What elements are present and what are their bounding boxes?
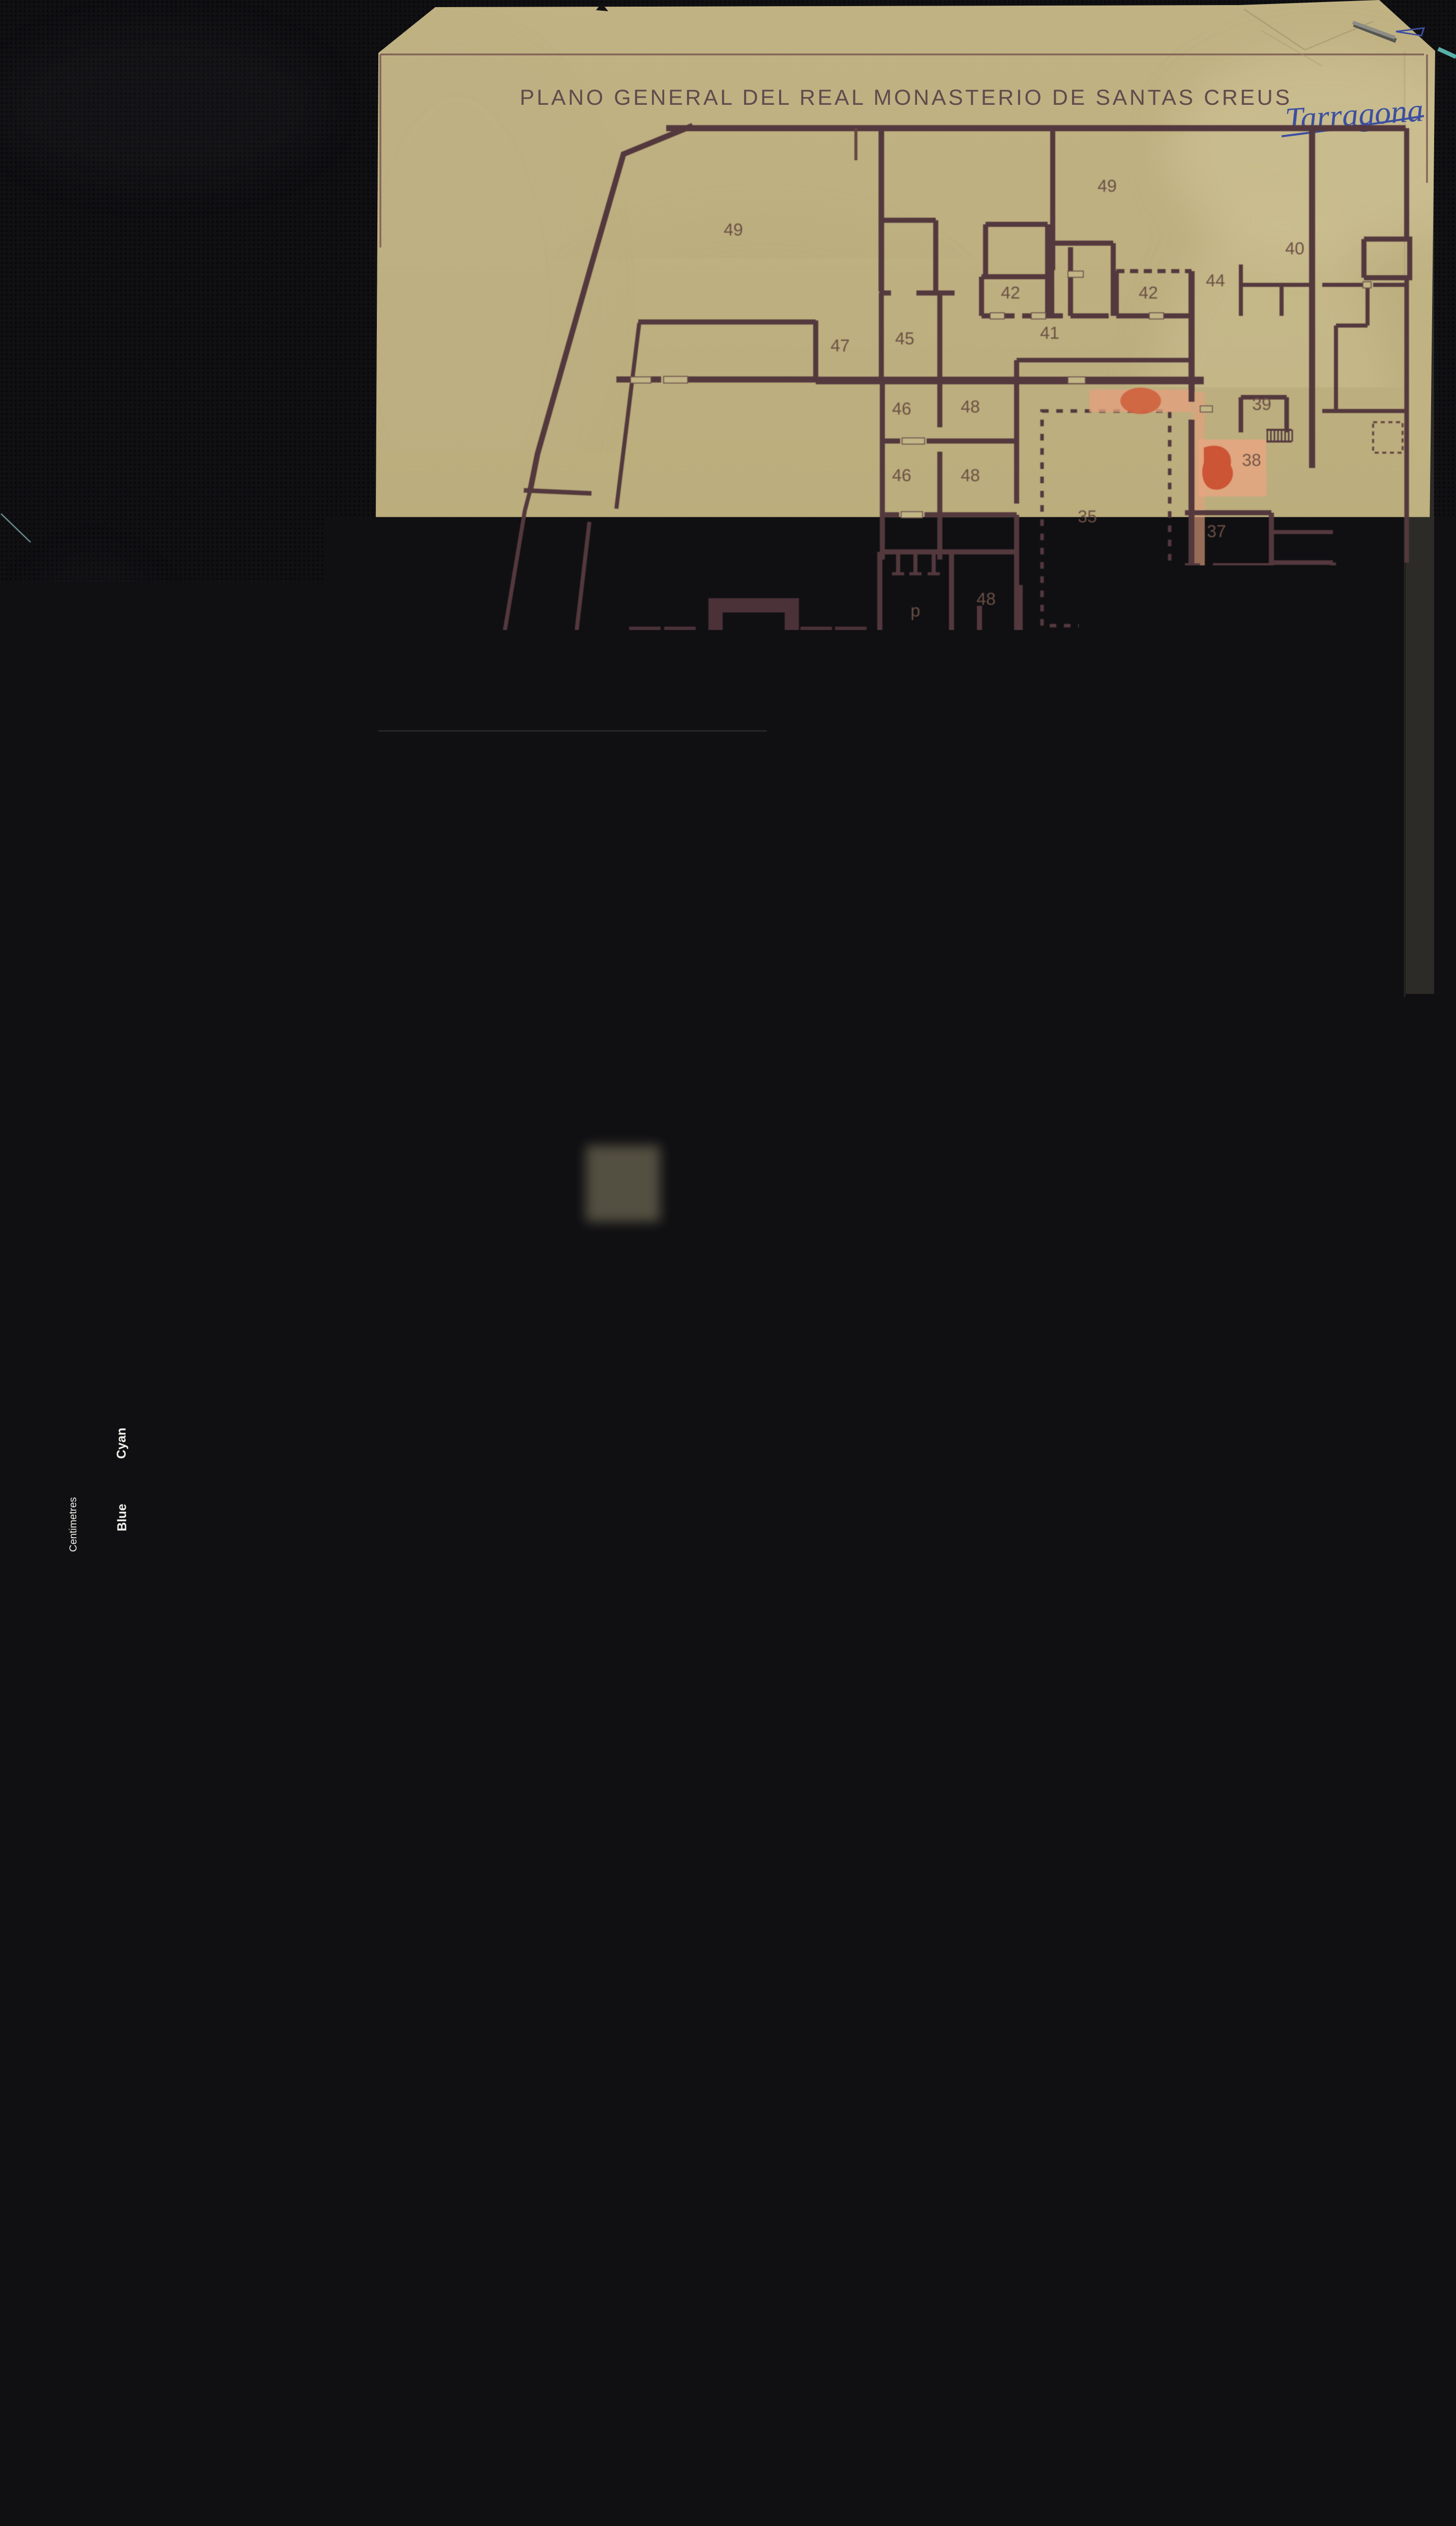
svg-text:3 2: 3 2 [944, 691, 968, 711]
svg-text:29: 29 [685, 2252, 703, 2269]
svg-text:14: 14 [478, 1379, 497, 1398]
svg-text:17: 17 [932, 1144, 952, 1163]
svg-text:5: 5 [623, 1978, 631, 1993]
svg-text:PALACIO DEL ABAD: PALACIO DEL ABAD [424, 2252, 570, 2269]
svg-text:IGLESIA DE SANTA LUCIA: IGLESIA DE SANTA LUCIA [424, 2229, 625, 2247]
svg-text:33: 33 [894, 718, 913, 738]
svg-text:BOTIQUIN DE LA ENFERMERIA: BOTIQUIN DE LA ENFERMERIA [1107, 2185, 1336, 2202]
svg-text:19: 19 [393, 2454, 411, 2471]
svg-text:36: 36 [1209, 690, 1229, 709]
svg-text:ESCALERAS DEL DORMITORIO: ESCALERAS DEL DORMITORIO [716, 2297, 935, 2314]
svg-text:5: 5 [402, 2140, 411, 2157]
svg-text:PRIORATO: PRIORATO [716, 2207, 789, 2224]
svg-text:37: 37 [685, 2431, 703, 2449]
svg-text:El arquitecto de la 4ª zona: El arquitecto de la 4ª zona [1196, 2015, 1406, 2040]
svg-text:10: 10 [581, 1978, 596, 1993]
svg-text:5: 5 [44, 1125, 57, 1132]
svg-text:9: 9 [63, 1245, 74, 1250]
svg-text:27: 27 [1110, 841, 1130, 861]
svg-text:CAPILLA DE LA ASUNCION: CAPILLA DE LA ASUNCION [716, 2342, 917, 2359]
svg-text:20: 20 [815, 1978, 830, 1993]
svg-text:x: x [692, 1072, 701, 1092]
svg-text:41: 41 [1040, 324, 1059, 343]
svg-text:4: 4 [402, 2118, 411, 2135]
svg-text:TORRE CARCEL: TORRE CARCEL [716, 2409, 825, 2426]
svg-text:12: 12 [970, 1280, 989, 1300]
svg-text:7: 7 [64, 1313, 74, 1319]
svg-text:18: 18 [393, 2431, 411, 2449]
svg-text:6: 6 [43, 1040, 56, 1047]
svg-text:HOSPEDERIA: HOSPEDERIA [424, 2319, 515, 2337]
svg-text:43: 43 [1076, 2140, 1094, 2157]
svg-text:AULA CAPITULAR: AULA CAPITULAR [716, 2319, 844, 2337]
svg-text:ORATORIO DE LA ENFERMERIA: ORATORIO DE LA ENFERMERIA [1107, 2229, 1336, 2247]
svg-text:IGLESIA MAYOR: IGLESIA MAYOR [716, 2095, 835, 2112]
svg-text:7: 7 [806, 1790, 816, 1809]
svg-text:40: 40 [1076, 2073, 1094, 2090]
svg-text:10: 10 [63, 1208, 74, 1218]
svg-text:7: 7 [42, 955, 55, 962]
svg-text:1: 1 [46, 1465, 59, 1472]
svg-text:48: 48 [961, 466, 980, 485]
svg-text:16: 16 [553, 899, 572, 918]
svg-text:h: h [785, 826, 794, 846]
svg-text:8: 8 [402, 2207, 411, 2224]
svg-text:CASAS DE MONJES JUBILADOS: CASAS DE MONJES JUBILADOS [424, 2364, 652, 2382]
svg-text:0: 0 [661, 1978, 668, 1993]
svg-text:20: 20 [685, 2050, 703, 2068]
svg-text:32: 32 [685, 2319, 703, 2337]
svg-text:CAPILLA DE SAN BENITO: CAPILLA DE SAN BENITO [716, 2274, 908, 2292]
svg-text:PRIMERA PLAZA EXTERIOR: PRIMERA PLAZA EXTERIOR [424, 2140, 625, 2157]
svg-text:TEMPLETE DEL CLAUSTRO: TEMPLETE DEL CLAUSTRO [716, 2185, 908, 2202]
svg-text:11: 11 [884, 1306, 902, 1325]
svg-text:45: 45 [895, 329, 914, 348]
svg-text:15: 15 [62, 1037, 72, 1047]
svg-text:12: 12 [63, 1139, 73, 1150]
svg-text:49: 49 [724, 220, 743, 240]
svg-text:Blue: Blue [115, 1504, 129, 1531]
svg-text:e: e [688, 661, 696, 682]
svg-text:26: 26 [685, 2185, 703, 2202]
svg-text:49: 49 [1097, 177, 1117, 196]
svg-text:o: o [697, 762, 706, 783]
svg-text:23: 23 [685, 2118, 703, 2135]
svg-text:SEGUNDA PUERTA: SEGUNDA PUERTA [424, 2185, 552, 2202]
svg-text:48: 48 [961, 397, 980, 417]
svg-text:13: 13 [62, 1105, 73, 1115]
svg-text:PALACIO REAL: PALACIO REAL [1107, 2050, 1217, 2068]
svg-text:37: 37 [1207, 585, 1226, 604]
svg-text:PUERTA REAL O REXADA: PUERTA REAL O REXADA [716, 2140, 899, 2157]
svg-text:a: a [742, 645, 751, 665]
svg-text:10: 10 [853, 1448, 872, 1467]
svg-text:PATIO: PATIO [1107, 2095, 1153, 2112]
svg-text:42: 42 [1139, 283, 1158, 303]
svg-text:21: 21 [685, 2073, 703, 2090]
svg-text:CASAS DE MONJES JUBILADOS: CASAS DE MONJES JUBILADOS [424, 2342, 652, 2359]
svg-text:BALSAS DE HIELO: BALSAS DE HIELO [424, 2387, 561, 2404]
svg-text:ARBOLEDA JUNTO AL RIO: ARBOLEDA JUNTO AL RIO [1107, 2319, 1299, 2337]
svg-text:4: 4 [65, 1415, 75, 1421]
svg-text:15: 15 [610, 1094, 630, 1113]
svg-text:14: 14 [651, 1462, 670, 1481]
svg-text:42: 42 [1001, 283, 1020, 303]
svg-text:PRIMERA PUERTA EXTERIOR: PRIMERA PUERTA EXTERIOR [424, 2073, 634, 2090]
svg-text:TORRE: TORRE [1107, 2073, 1153, 2090]
svg-text:LAVABO: LAVABO [716, 2229, 770, 2247]
svg-text:12: 12 [393, 2297, 411, 2314]
svg-text:BOLSERIA: BOLSERIA [424, 2274, 497, 2292]
svg-text:Red: Red [113, 1209, 127, 1232]
svg-text:50: 50 [1043, 1978, 1058, 1993]
svg-text:44: 44 [1076, 2162, 1094, 2180]
svg-text:27: 27 [685, 2207, 703, 2224]
svg-text:Black: Black [111, 906, 125, 941]
svg-text:y: y [803, 1072, 813, 1092]
svg-text:15: 15 [518, 1103, 537, 1123]
svg-text:q: q [639, 700, 648, 720]
svg-text:CLAUSTRO VIEJO: CLAUSTRO VIEJO [716, 2387, 844, 2404]
svg-text:35: 35 [1078, 507, 1097, 526]
svg-text:44: 44 [1206, 271, 1225, 290]
svg-text:14: 14 [621, 1285, 640, 1304]
svg-text:2: 2 [45, 1380, 58, 1387]
svg-text:8: 8 [858, 1739, 868, 1758]
svg-text:35: 35 [685, 2387, 703, 2404]
svg-text:17: 17 [734, 1295, 753, 1314]
svg-text:47: 47 [1076, 2229, 1094, 2247]
svg-text:2: 2 [402, 2073, 411, 2090]
svg-text:10: 10 [736, 1978, 752, 1993]
svg-text:COCINA: COCINA [716, 2431, 770, 2449]
svg-text:3: 3 [65, 1450, 75, 1455]
svg-text:14: 14 [393, 2342, 411, 2359]
svg-text:PORTERIA: PORTERIA [424, 2095, 497, 2112]
svg-text:37: 37 [1207, 522, 1226, 541]
svg-text:38: 38 [685, 2454, 703, 2471]
svg-text:20: 20 [1270, 1081, 1289, 1100]
svg-text:21: 21 [732, 1111, 751, 1131]
svg-text:6: 6 [619, 1613, 629, 1632]
svg-text:9: 9 [402, 2229, 411, 2247]
svg-text:MOZOS DE LABRANZA: MOZOS DE LABRANZA [424, 2162, 579, 2180]
svg-text:2: 2 [482, 1714, 491, 1733]
svg-text:46: 46 [892, 399, 911, 419]
svg-text:b: b [732, 700, 741, 720]
svg-text:19: 19 [765, 1475, 784, 1494]
svg-text:40: 40 [1285, 239, 1304, 258]
svg-text:MURO DE CERRAMIENTO: MURO DE CERRAMIENTO [424, 2050, 598, 2068]
svg-text:ADMINISTRACION: ADMINISTRACION [424, 2297, 552, 2314]
svg-text:HUERTOS: HUERTOS [716, 2050, 780, 2068]
svg-text:4: 4 [44, 1210, 57, 1217]
svg-text:6: 6 [64, 1347, 75, 1353]
svg-text:22: 22 [685, 2095, 703, 2112]
svg-text:Centimetres: Centimetres [68, 1497, 79, 1552]
svg-text:ESCALERA DEL CAMPANARIO: ESCALERA DEL CAMPANARIO [716, 2118, 926, 2135]
svg-text:m: m [695, 887, 708, 907]
svg-text:27: 27 [1096, 929, 1116, 949]
svg-text:c: c [743, 838, 751, 858]
svg-text:25: 25 [919, 830, 938, 849]
svg-text:3: 3 [45, 1295, 58, 1302]
svg-text:10: 10 [930, 1729, 949, 1749]
svg-text:6: 6 [693, 1708, 702, 1727]
svg-text:40: 40 [967, 1978, 983, 1993]
svg-text:JUEGO DE PELOTA: JUEGO DE PELOTA [424, 2431, 561, 2449]
svg-text:45: 45 [1076, 2185, 1094, 2202]
svg-text:1: 1 [402, 2050, 411, 2068]
svg-text:6: 6 [402, 2162, 411, 2180]
svg-text:CASA DEL MONJE VICARIO: CASA DEL MONJE VICARIO [424, 2207, 625, 2224]
svg-text:5: 5 [64, 1382, 75, 1387]
svg-text:13: 13 [393, 2319, 411, 2337]
svg-text:BODEGAS: BODEGAS [716, 2252, 780, 2269]
svg-text:30: 30 [685, 2274, 703, 2292]
svg-text:PRIMITIVAS EDIFICACIONES: PRIMITIVAS EDIFICACIONES [1107, 2118, 1327, 2135]
svg-text:38: 38 [1242, 451, 1261, 470]
svg-text:31: 31 [1002, 750, 1021, 769]
svg-text:14: 14 [679, 1607, 699, 1627]
svg-text:10: 10 [393, 2252, 411, 2269]
svg-text:LICENSED PRODUCT: LICENSED PRODUCT [100, 901, 109, 992]
svg-text:CLAUSTRO PRINCIPAL: CLAUSTRO PRINCIPAL [716, 2162, 880, 2180]
svg-text:Alejandro Ferrant: Alejandro Ferrant [1193, 2045, 1398, 2074]
svg-text:33: 33 [685, 2342, 703, 2359]
svg-text:l: l [680, 1007, 685, 1027]
svg-text:28: 28 [1151, 775, 1170, 794]
svg-text:3: 3 [402, 2095, 411, 2112]
svg-text:42: 42 [1076, 2118, 1094, 2135]
svg-text:34: 34 [1024, 688, 1043, 707]
svg-text:Cyan: Cyan [114, 1428, 129, 1459]
svg-text:18: 18 [940, 1043, 960, 1062]
svg-text:White: White [112, 1054, 126, 1089]
svg-text:48: 48 [976, 590, 996, 609]
svg-text:13: 13 [1126, 1260, 1145, 1279]
svg-text:29: 29 [1119, 690, 1138, 709]
svg-text:5: 5 [671, 1802, 681, 1822]
svg-text:8: 8 [64, 1279, 74, 1284]
svg-text:30: 30 [891, 1978, 906, 1993]
svg-text:11: 11 [63, 1174, 73, 1184]
svg-text:PLANO GENERAL DEL REAL MONASTE: PLANO GENERAL DEL REAL MONASTERIO DE SAN… [520, 85, 1293, 110]
svg-text:n: n [696, 824, 705, 844]
svg-text:36: 36 [685, 2409, 703, 2426]
svg-text:Magenta: Magenta [112, 1120, 127, 1172]
svg-text:HABITACIONES DE MONJES: HABITACIONES DE MONJES [1107, 2252, 1309, 2269]
svg-text:24: 24 [1097, 1024, 1117, 1044]
svg-text:TARRAGONA 21 OCTUBRE 1940: TARRAGONA 21 OCTUBRE 1940 [1110, 1919, 1376, 1936]
svg-text:34: 34 [685, 2364, 703, 2382]
svg-text:METROS: METROS [1064, 1997, 1130, 2012]
svg-text:10: 10 [880, 1620, 899, 1639]
svg-text:2: 2 [65, 1484, 76, 1490]
svg-text:13: 13 [1044, 1276, 1063, 1295]
svg-text:30: 30 [1055, 717, 1075, 736]
svg-text:3: 3 [766, 1747, 776, 1766]
svg-text:N: N [1192, 1007, 1205, 1026]
svg-text:39: 39 [1076, 2050, 1094, 2068]
svg-text:4: 4 [549, 1644, 558, 1664]
svg-text:SALAS DE ENFERMERIA: SALAS DE ENFERMERIA [1107, 2207, 1281, 2224]
svg-text:3: 3 [477, 1757, 487, 1777]
svg-text:PRIMITIVA IGLESIA: PRIMITIVA IGLESIA [1107, 2140, 1263, 2157]
svg-text:15: 15 [393, 2364, 411, 2382]
svg-text:49: 49 [1076, 2274, 1094, 2292]
svg-text:Green: Green [114, 1350, 129, 1387]
svg-text:SASTRERIA: SASTRERIA [1107, 2162, 1190, 2180]
svg-text:HERRERIA: HERRERIA [424, 2118, 497, 2135]
svg-text:REFECTORIO: REFECTORIO [716, 2454, 807, 2471]
svg-text:47: 47 [830, 336, 850, 356]
svg-text:p: p [911, 601, 920, 621]
svg-text:FUENTE DE SAN BERNARDO: FUENTE DE SAN BERNARDO [424, 2454, 625, 2471]
svg-text:PLAZA MAYOR: PLAZA MAYOR [424, 2409, 524, 2426]
svg-text:51: 51 [1076, 2319, 1094, 2337]
svg-text:51: 51 [1185, 1899, 1200, 1915]
svg-text:48: 48 [1076, 2252, 1094, 2269]
svg-text:7: 7 [402, 2185, 411, 2202]
svg-text:25: 25 [685, 2162, 703, 2180]
svg-text:1: 1 [435, 1727, 444, 1746]
svg-text:11: 11 [393, 2274, 411, 2292]
svg-text:39: 39 [1252, 395, 1271, 414]
svg-text:PUERTA DE LA IGLESIA MAYOR: PUERTA DE LA IGLESIA MAYOR [716, 2073, 954, 2090]
svg-text:31: 31 [685, 2297, 703, 2314]
svg-text:46: 46 [892, 466, 911, 485]
svg-text:24: 24 [685, 2140, 703, 2157]
svg-text:Yellow: Yellow [113, 1275, 128, 1315]
svg-text:14: 14 [62, 1071, 73, 1082]
svg-text:22: 22 [739, 964, 759, 984]
svg-text:g: g [842, 666, 851, 687]
svg-text:LOCUTORIO: LOCUTORIO [716, 2364, 798, 2382]
svg-text:41: 41 [1076, 2095, 1094, 2112]
svg-text:CEMENTERIO: CEMENTERIO [1107, 2297, 1199, 2314]
svg-text:26: 26 [996, 900, 1015, 919]
svg-text:HUERTOS INTERIORES: HUERTOS INTERIORES [1107, 2274, 1272, 2292]
svg-text:50: 50 [1076, 2297, 1094, 2314]
svg-text:9: 9 [930, 1809, 939, 1829]
svg-text:17: 17 [393, 2409, 411, 2426]
svg-text:a: a [645, 661, 654, 682]
svg-text:8: 8 [42, 870, 55, 877]
svg-text:28: 28 [685, 2229, 703, 2247]
svg-text:3/Color: 3/Color [111, 976, 126, 1020]
svg-text:16: 16 [393, 2387, 411, 2404]
svg-text:16: 16 [62, 1003, 72, 1013]
svg-text:46: 46 [1076, 2207, 1094, 2224]
svg-text:Inches: Inches [47, 1522, 58, 1552]
